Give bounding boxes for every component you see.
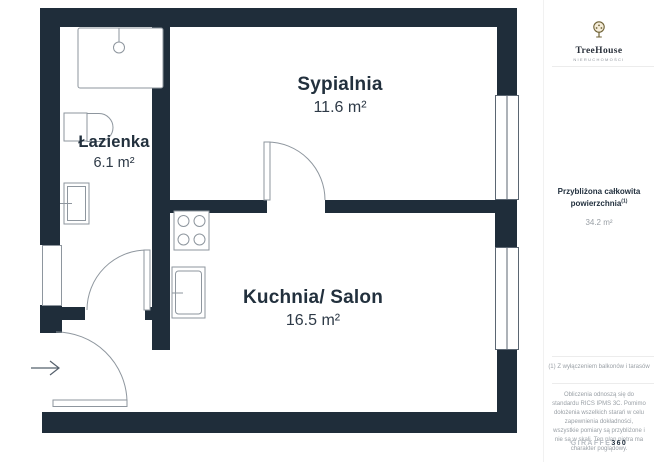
entrance-arrow-icon: [31, 361, 59, 375]
total-area-superscript: (1): [621, 199, 627, 205]
floorplan-canvas: Sypialnia 11.6 m² Łazienka 6.1 m² Kuchni…: [0, 0, 543, 462]
bedroom-door-arc: [267, 142, 325, 200]
wall-right-top: [497, 8, 517, 95]
total-area-summary: Przybliżona całkowita powierzchnia(1) 34…: [544, 186, 654, 227]
wall-right-mid: [495, 213, 517, 247]
entrance-door-leaf: [53, 400, 127, 407]
wall-bathroom-bottom-left: [42, 307, 85, 320]
entrance-door-arc: [56, 332, 127, 401]
watermark-brand: GIRAFFE: [571, 440, 612, 447]
room-area: 16.5 m²: [243, 312, 383, 330]
room-label-sypialnia: Sypialnia 11.6 m²: [297, 74, 382, 117]
room-label-kuchnia-salon: Kuchnia/ Salon 16.5 m²: [243, 287, 383, 330]
total-area-title-text: Przybliżona całkowita powierzchnia: [558, 187, 641, 208]
watermark-suffix: 360: [611, 440, 627, 447]
room-area: 11.6 m²: [297, 99, 382, 117]
tree-icon: [590, 20, 608, 39]
wall-mid-right: [325, 200, 517, 213]
room-area: 6.1 m²: [78, 155, 149, 171]
divider: [552, 66, 654, 67]
stove-burner: [178, 216, 189, 227]
stove-burner: [194, 216, 205, 227]
floorplan-drawing: [0, 0, 543, 462]
divider: [552, 356, 654, 357]
wall-bottom: [42, 412, 517, 433]
shower-tray: [78, 28, 163, 88]
wall-right-bottom: [497, 350, 517, 412]
stove-burner: [194, 234, 205, 245]
bathroom-door-leaf: [144, 250, 150, 310]
bathroom-door-arc: [87, 250, 147, 310]
shower-drain: [114, 42, 125, 53]
room-name: Kuchnia/ Salon: [243, 287, 383, 309]
floorplan-page: Sypialnia 11.6 m² Łazienka 6.1 m² Kuchni…: [0, 0, 654, 462]
agency-tagline: NIERUCHOMOŚCI: [544, 57, 654, 62]
agency-logo: TreeHouse NIERUCHOMOŚCI: [544, 20, 654, 62]
room-name: Sypialnia: [297, 74, 382, 96]
wall-left: [40, 8, 60, 245]
giraffe360-watermark: GIRAFFE360: [544, 440, 654, 447]
stove-burner: [178, 234, 189, 245]
total-area-title: Przybliżona całkowita powierzchnia(1): [544, 186, 654, 211]
wall-recess: [43, 246, 62, 306]
total-area-value: 34.2 m²: [544, 218, 654, 227]
footnote: (1) Z wyłączeniem balkonów i tarasów: [544, 364, 654, 370]
room-label-lazienka: Łazienka 6.1 m²: [78, 133, 149, 171]
info-sidebar: TreeHouse NIERUCHOMOŚCI Przybliżona całk…: [543, 0, 654, 462]
bedroom-door-leaf: [264, 142, 270, 200]
room-name: Łazienka: [78, 133, 149, 152]
fixtures: [60, 28, 209, 318]
divider: [552, 383, 654, 384]
agency-name: TreeHouse: [544, 46, 654, 56]
wall-top: [40, 8, 517, 27]
